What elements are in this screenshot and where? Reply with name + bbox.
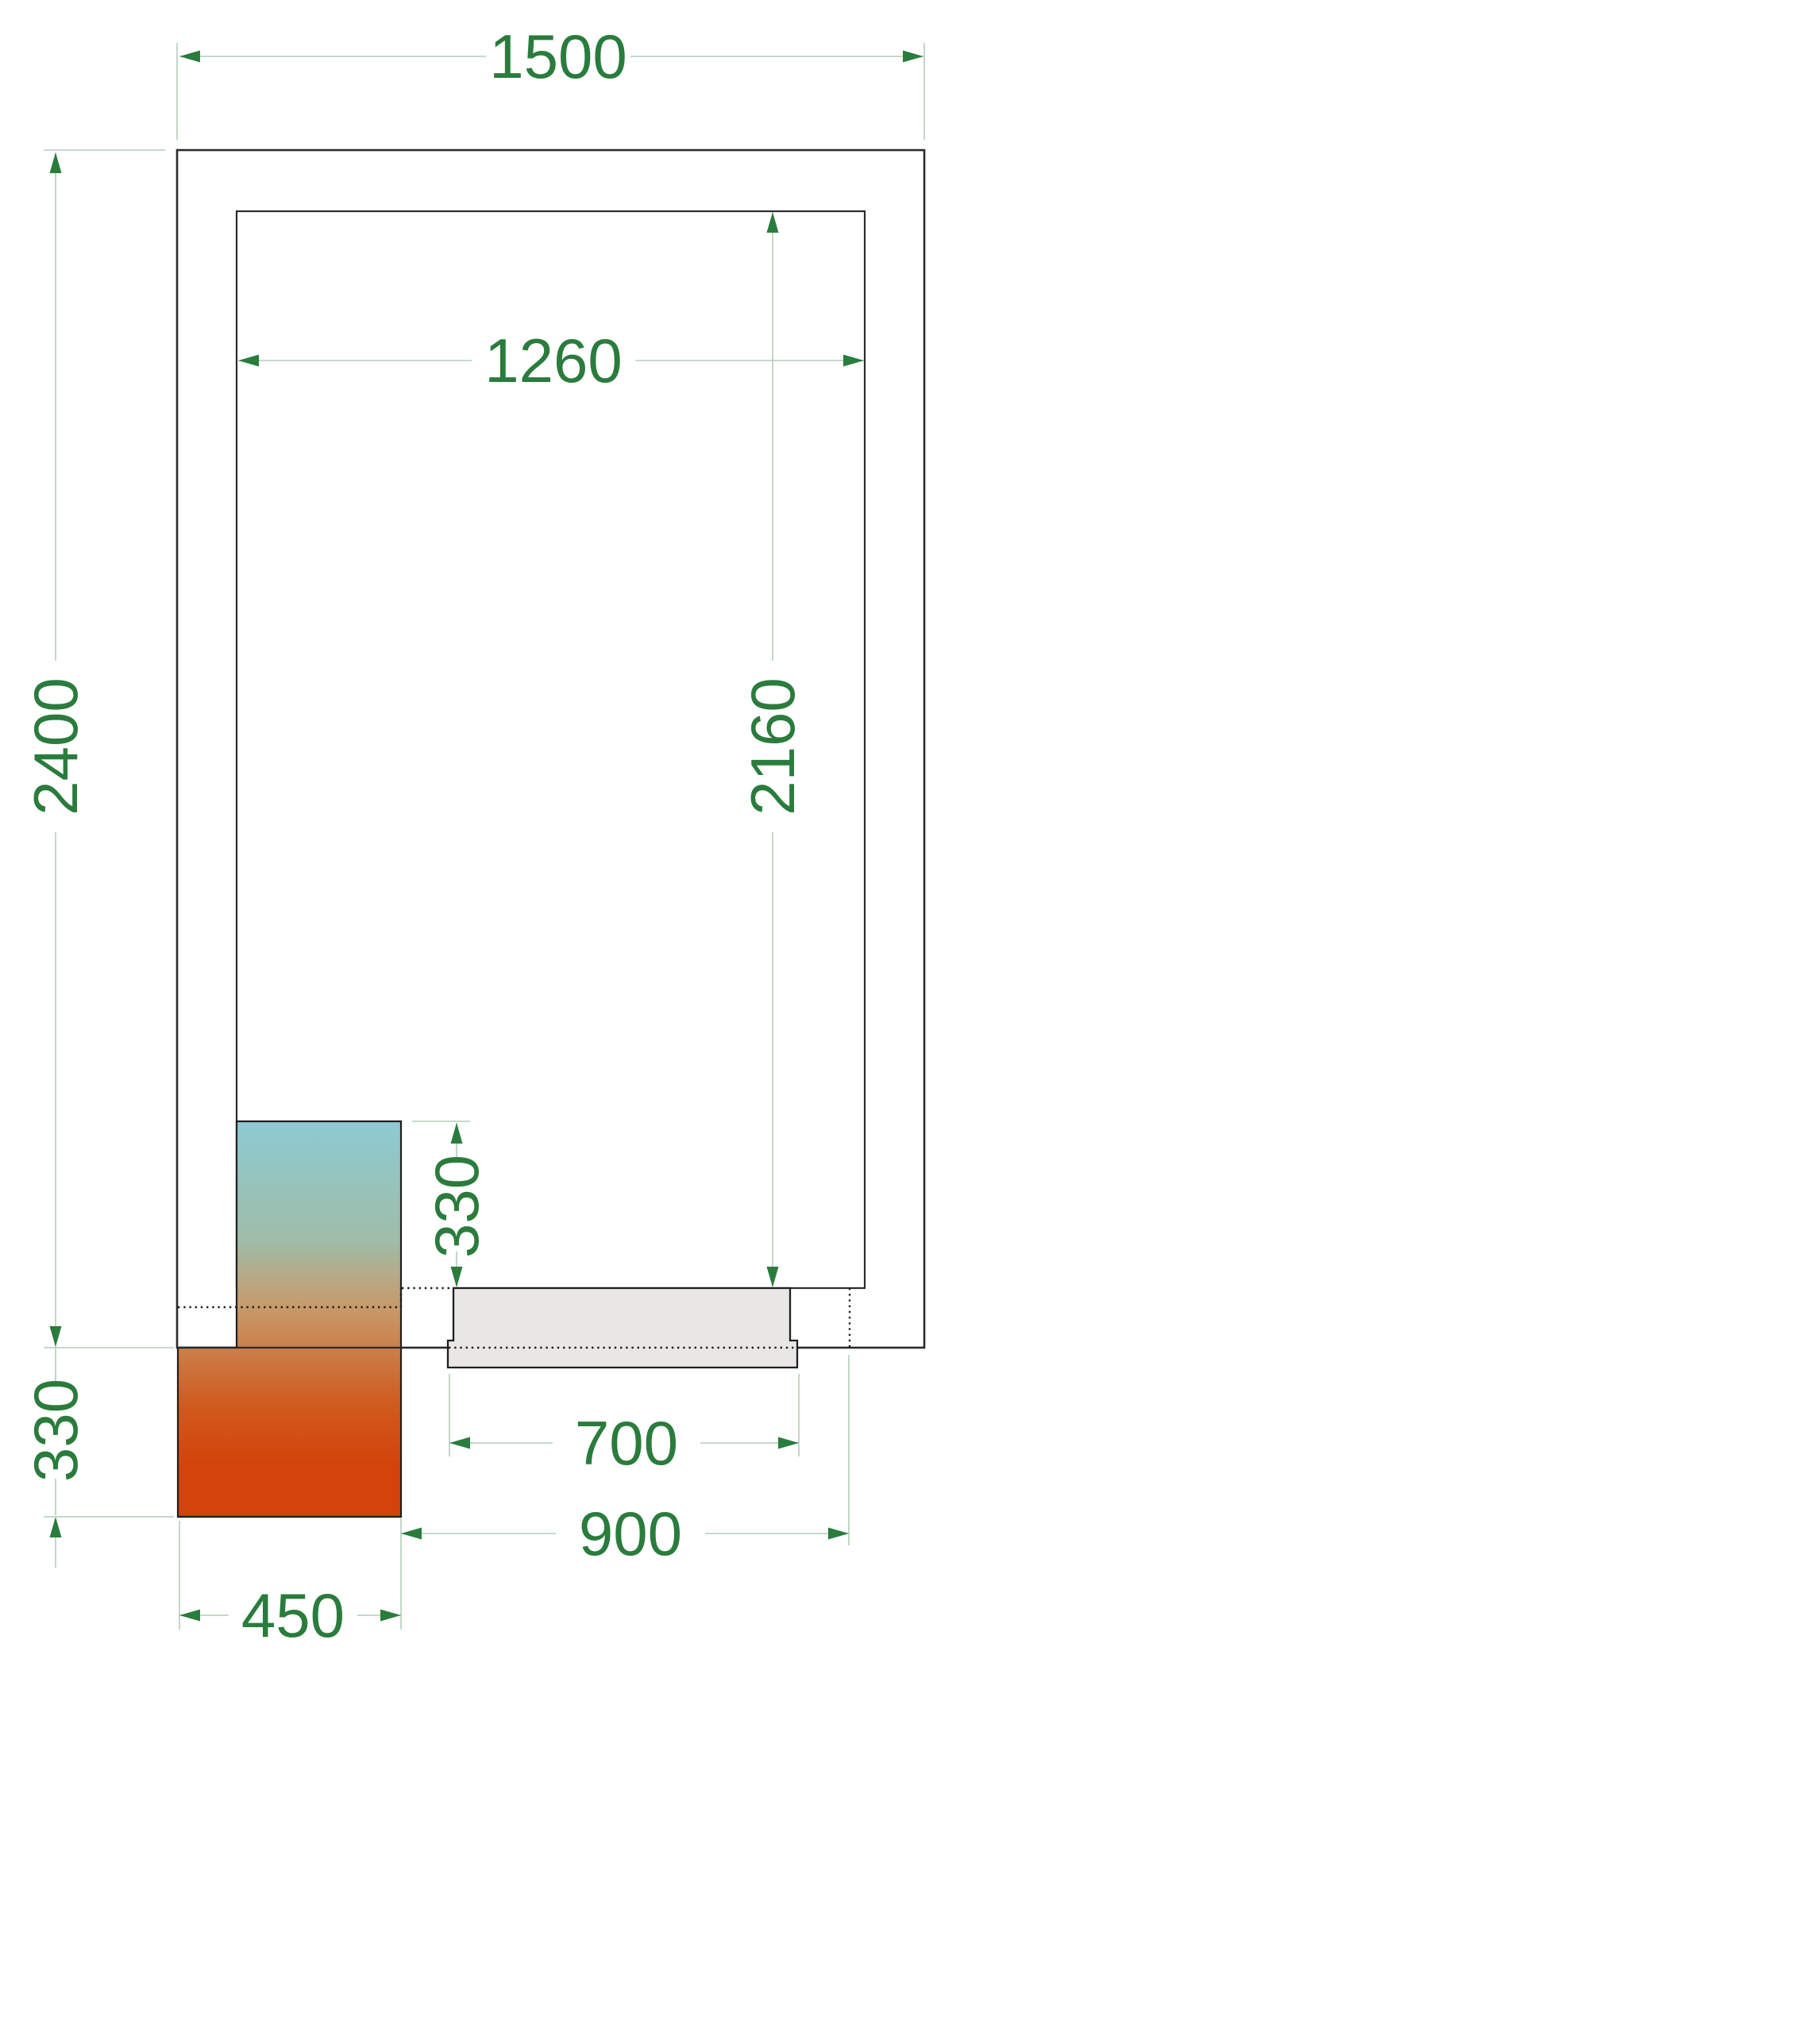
arrow-left-icon <box>179 51 200 63</box>
dim-outer-width: 1500 <box>177 21 924 140</box>
dim-outer-depth: 2400 <box>21 150 174 1348</box>
dim-unit-offset: 330 <box>412 1121 492 1287</box>
arrow-up-icon <box>451 1123 463 1144</box>
dim-unit-protrusion: 330 <box>21 1348 174 1568</box>
dim-inner-depth-label: 2160 <box>738 677 808 816</box>
door-panel <box>448 1288 797 1368</box>
cooling-unit-block <box>178 1121 401 1517</box>
arrow-left-icon <box>238 355 259 367</box>
dim-unit-width-label: 450 <box>241 1580 345 1650</box>
dim-inner-depth: 2160 <box>738 212 808 1287</box>
arrow-down-icon <box>767 1267 779 1287</box>
arrow-left-icon <box>179 1610 200 1622</box>
arrow-up-icon <box>50 152 62 173</box>
dim-inner-width-label: 1260 <box>484 326 623 395</box>
arrow-right-icon <box>828 1528 849 1540</box>
arrow-right-icon <box>380 1610 401 1622</box>
arrow-right-icon <box>778 1437 799 1449</box>
dim-door-opening-label: 900 <box>579 1499 682 1568</box>
dim-door-opening: 900 <box>401 1355 849 1630</box>
dim-unit-protrusion-label: 330 <box>21 1379 91 1482</box>
cold-room-drawing-page: 1500 2400 1260 2160 330 <box>0 0 1820 2033</box>
dim-outer-depth-label: 2400 <box>21 677 91 816</box>
arrow-right-icon <box>843 355 864 367</box>
arrow-left-icon <box>449 1437 470 1449</box>
dim-unit-offset-label: 330 <box>422 1155 492 1258</box>
dim-door-leaf: 700 <box>449 1374 799 1478</box>
cold-room-technical-drawing: 1500 2400 1260 2160 330 <box>0 0 1820 2033</box>
dim-inner-width: 1260 <box>238 326 864 395</box>
arrow-down-icon <box>50 1326 62 1347</box>
arrow-down-icon <box>451 1267 463 1287</box>
dim-door-leaf-label: 700 <box>575 1408 678 1478</box>
dim-outer-width-label: 1500 <box>489 21 627 91</box>
dim-unit-width: 450 <box>179 1521 401 1650</box>
arrow-right-icon <box>903 51 923 63</box>
arrow-left-icon <box>401 1528 422 1540</box>
arrow-up-icon <box>767 212 779 233</box>
arrow-up-icon <box>50 1517 62 1537</box>
